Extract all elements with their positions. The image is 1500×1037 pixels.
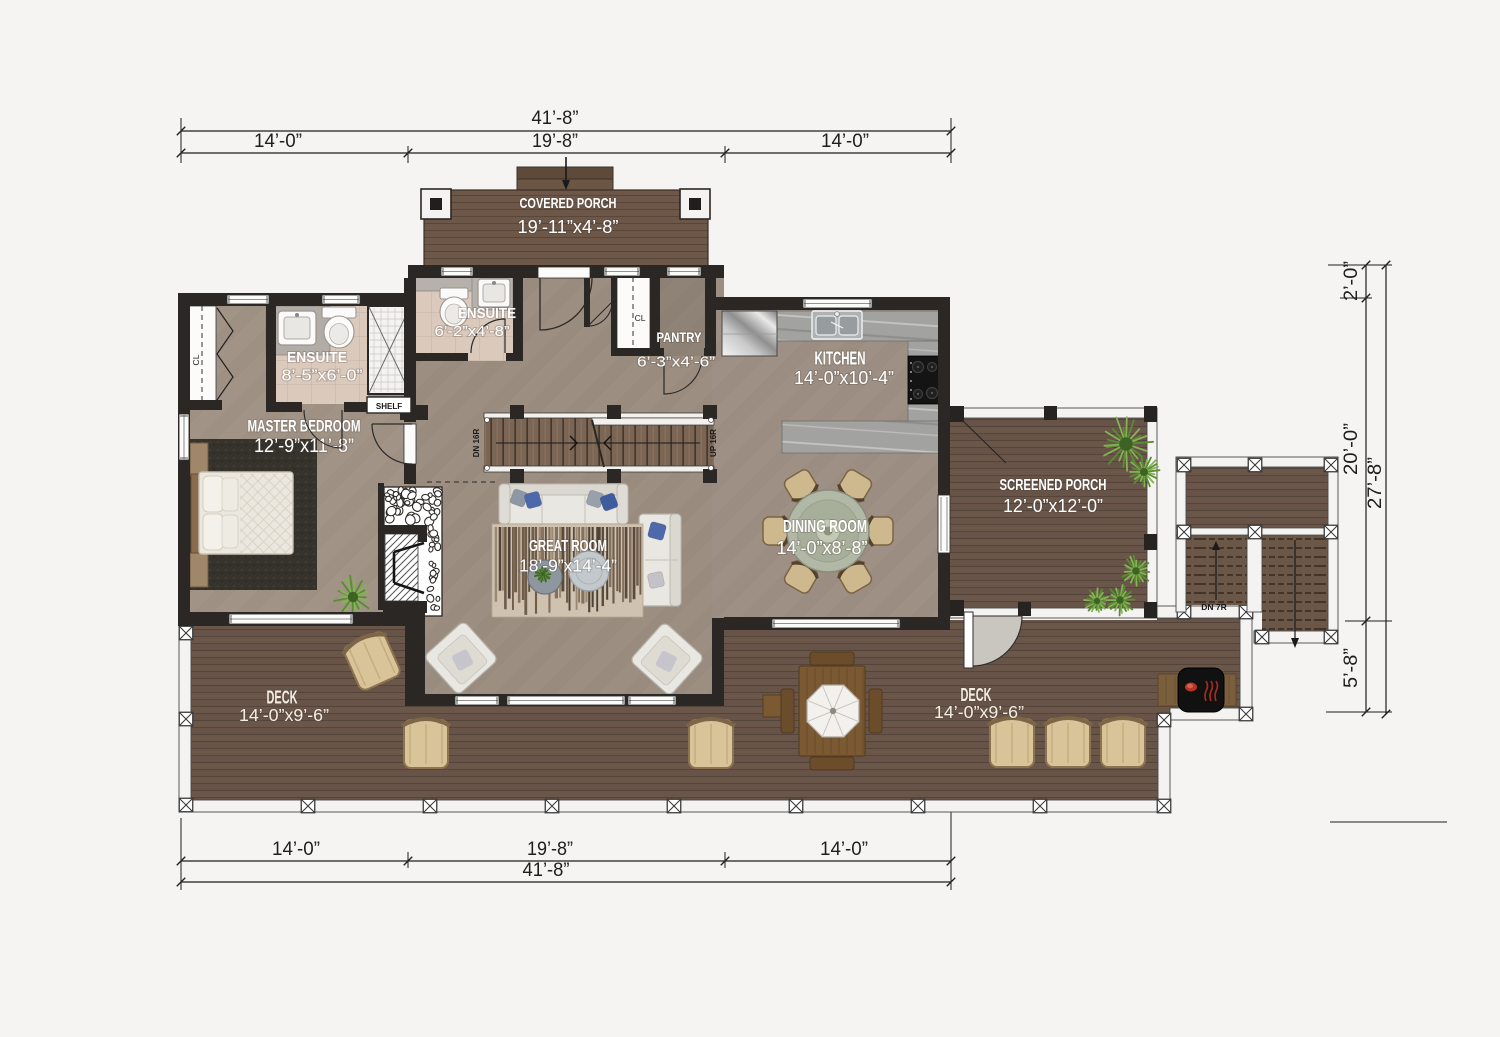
svg-text:ENSUITE: ENSUITE bbox=[458, 305, 516, 322]
svg-text:SCREENED PORCH: SCREENED PORCH bbox=[1000, 477, 1107, 494]
svg-text:18’-9”x14’-4”: 18’-9”x14’-4” bbox=[519, 556, 617, 576]
svg-text:14’-0”x9’-6”: 14’-0”x9’-6” bbox=[934, 702, 1024, 722]
svg-text:ENSUITE: ENSUITE bbox=[287, 349, 347, 366]
svg-text:41’-8”: 41’-8” bbox=[523, 859, 570, 881]
svg-text:14’-0”: 14’-0” bbox=[820, 838, 868, 860]
svg-text:41’-8”: 41’-8” bbox=[532, 107, 579, 129]
svg-text:COVERED PORCH: COVERED PORCH bbox=[520, 195, 617, 212]
svg-text:CL: CL bbox=[635, 313, 646, 323]
svg-text:12’-9”x11’-8”: 12’-9”x11’-8” bbox=[254, 436, 354, 457]
svg-text:SHELF: SHELF bbox=[376, 402, 402, 411]
svg-text:14’-0”: 14’-0” bbox=[254, 130, 302, 152]
svg-text:14’-0”x10’-4”: 14’-0”x10’-4” bbox=[794, 368, 894, 388]
svg-text:2’-0”: 2’-0” bbox=[1340, 261, 1362, 301]
svg-text:6’-3”x4’-6”: 6’-3”x4’-6” bbox=[637, 355, 715, 371]
svg-text:DN 16R: DN 16R bbox=[472, 429, 481, 458]
svg-text:14’-0”: 14’-0” bbox=[272, 838, 320, 860]
svg-text:GREAT ROOM: GREAT ROOM bbox=[529, 538, 607, 555]
svg-text:PANTRY: PANTRY bbox=[657, 330, 702, 345]
svg-text:DN 7R: DN 7R bbox=[1201, 602, 1227, 612]
svg-text:8’-5”x6’-0”: 8’-5”x6’-0” bbox=[282, 368, 363, 385]
svg-text:19’-11”x4’-8”: 19’-11”x4’-8” bbox=[518, 217, 619, 237]
svg-text:KITCHEN: KITCHEN bbox=[815, 349, 866, 369]
svg-text:19’-8”: 19’-8” bbox=[527, 838, 573, 860]
svg-text:CL: CL bbox=[191, 354, 201, 365]
svg-text:DINING ROOM: DINING ROOM bbox=[783, 516, 867, 536]
svg-text:14’-0”x9’-6”: 14’-0”x9’-6” bbox=[239, 705, 329, 725]
svg-text:20’-0”: 20’-0” bbox=[1340, 423, 1362, 475]
svg-text:12’-0”x12’-0”: 12’-0”x12’-0” bbox=[1003, 496, 1103, 516]
svg-text:14’-0”x8’-8”: 14’-0”x8’-8” bbox=[777, 538, 868, 558]
svg-text:27’-8”: 27’-8” bbox=[1364, 457, 1386, 509]
svg-text:MASTER BEDROOM: MASTER BEDROOM bbox=[248, 417, 361, 436]
svg-text:5’-8”: 5’-8” bbox=[1340, 648, 1362, 688]
svg-text:14’-0”: 14’-0” bbox=[821, 130, 869, 152]
svg-text:UP 16R: UP 16R bbox=[709, 429, 718, 457]
svg-text:6’-2”x4’-8”: 6’-2”x4’-8” bbox=[435, 323, 510, 340]
svg-text:19’-8”: 19’-8” bbox=[532, 130, 578, 152]
